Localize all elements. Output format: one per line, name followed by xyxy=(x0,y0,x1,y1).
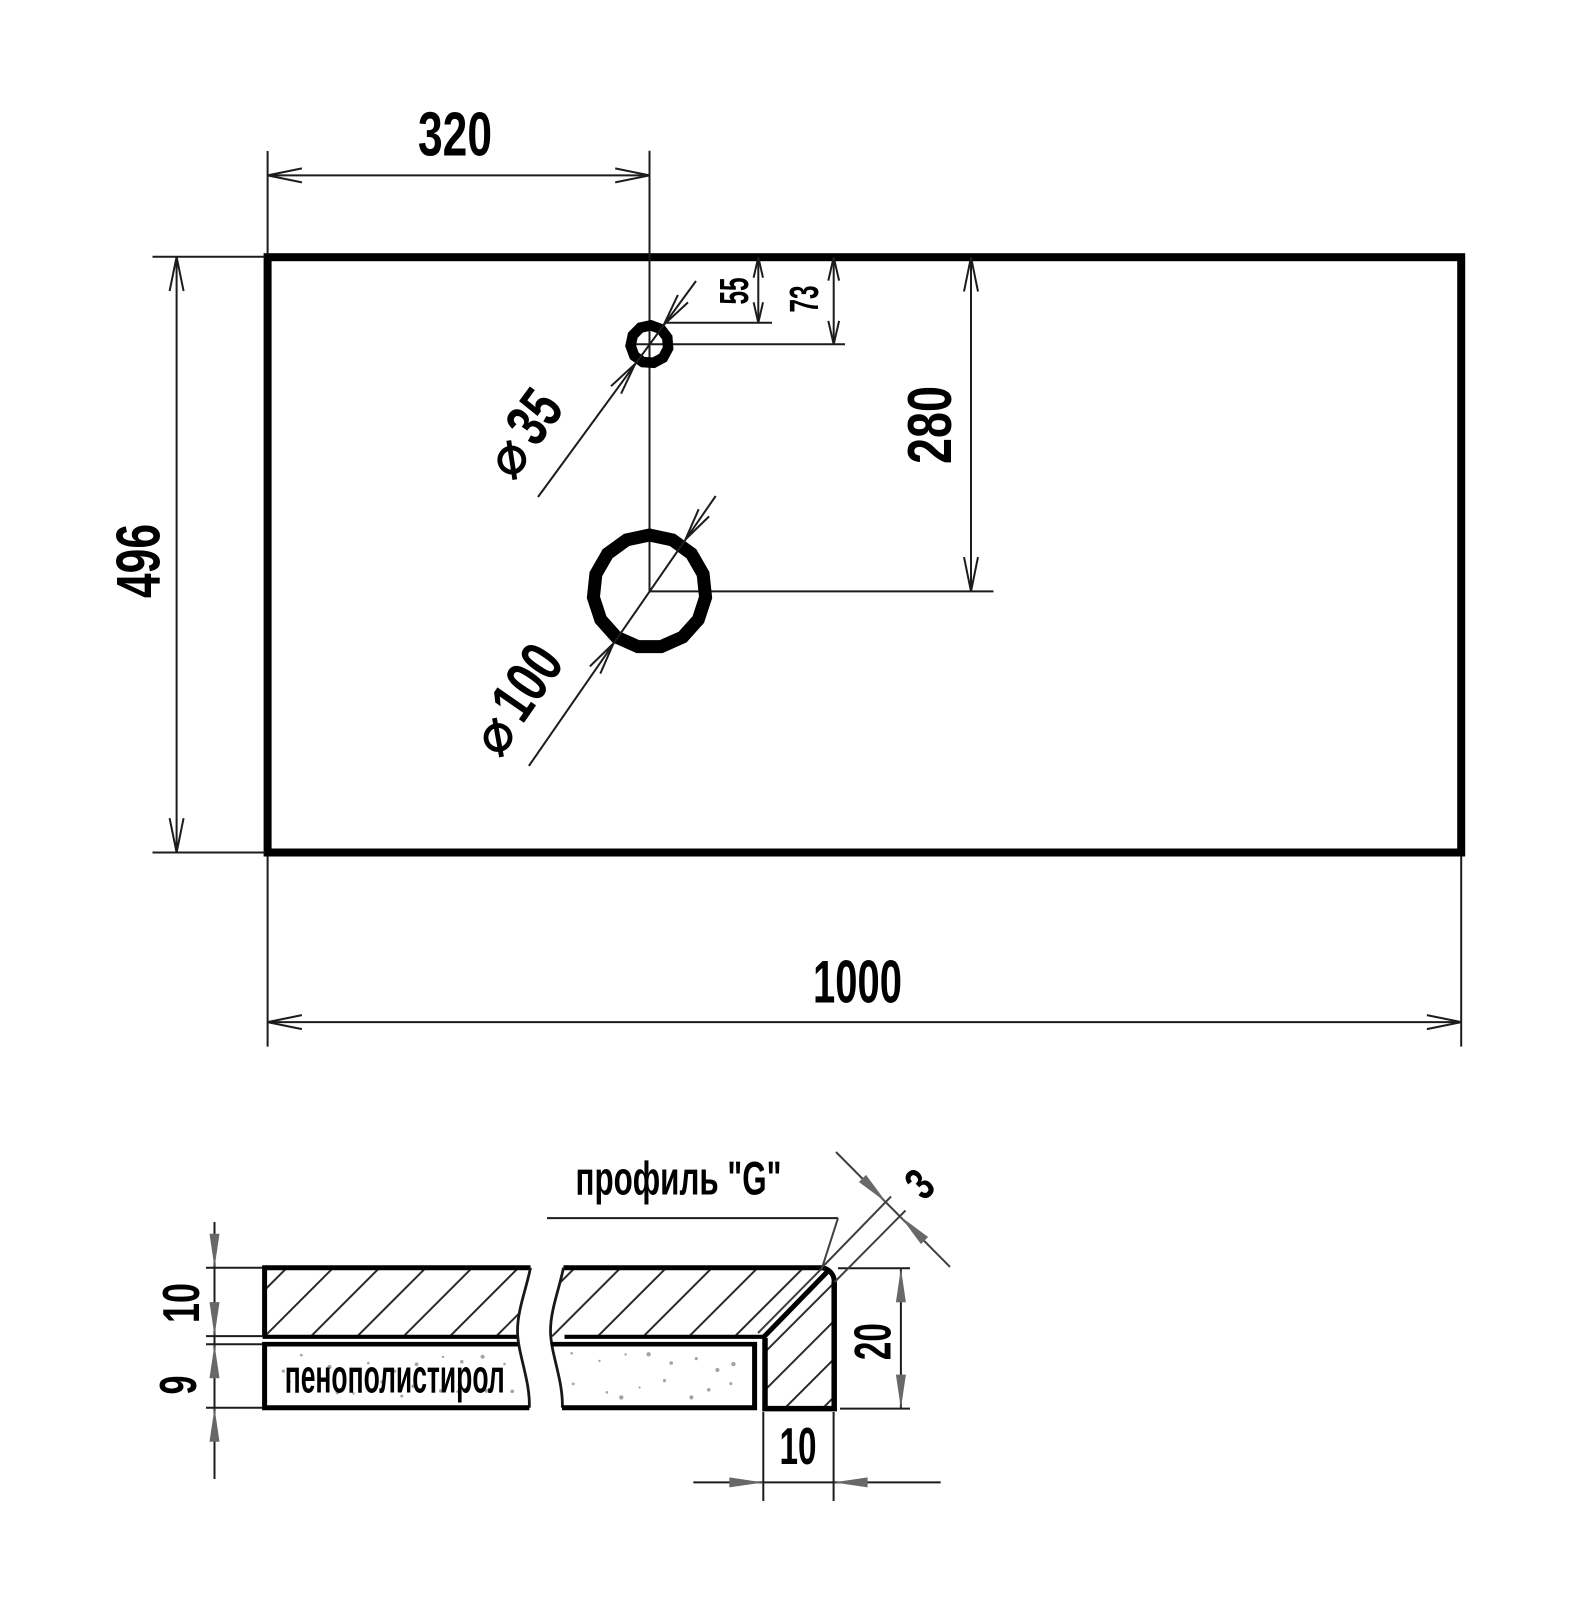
svg-text:496: 496 xyxy=(104,524,173,598)
svg-text:3: 3 xyxy=(894,1159,944,1209)
svg-text:пенополистирол: пенополистирол xyxy=(285,1350,505,1403)
svg-text:профиль "G": профиль "G" xyxy=(576,1152,782,1205)
svg-text:320: 320 xyxy=(418,101,492,170)
svg-text:55: 55 xyxy=(711,278,757,305)
svg-text:10: 10 xyxy=(780,1418,817,1476)
svg-text:1000: 1000 xyxy=(813,949,902,1016)
svg-text:9: 9 xyxy=(150,1376,208,1395)
svg-text:20: 20 xyxy=(844,1323,902,1360)
svg-text:73: 73 xyxy=(781,286,827,313)
svg-text:280: 280 xyxy=(896,386,965,464)
svg-text:10: 10 xyxy=(153,1283,211,1323)
